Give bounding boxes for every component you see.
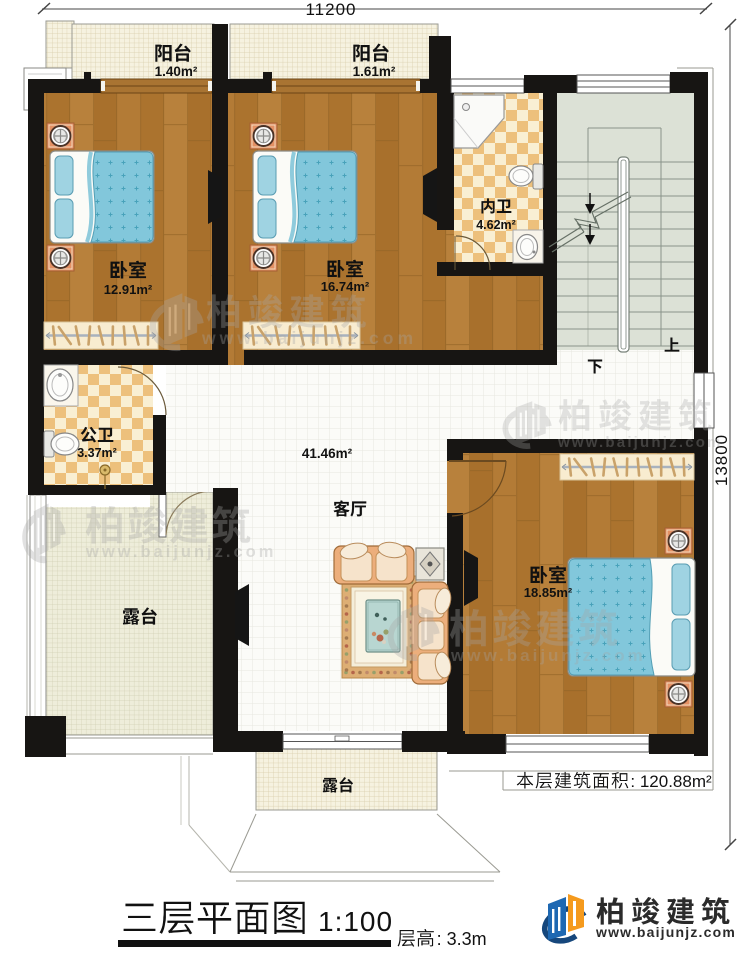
svg-text:1:100: 1:100 — [318, 906, 393, 937]
svg-text:: 120.88m²: : 120.88m² — [627, 772, 712, 791]
svg-text:www.baijunjz.com: www.baijunjz.com — [595, 924, 736, 940]
svg-text:www.baijunjz.com: www.baijunjz.com — [85, 543, 276, 561]
svg-text:4.62m²: 4.62m² — [476, 218, 516, 232]
svg-text:www.baijunjz.com: www.baijunjz.com — [201, 328, 417, 348]
svg-text:12.91m²: 12.91m² — [104, 282, 153, 297]
svg-text:16.74m²: 16.74m² — [321, 279, 370, 294]
svg-text:11200: 11200 — [305, 0, 356, 19]
svg-text:3.37m²: 3.37m² — [77, 446, 117, 460]
svg-text:www.baijunjz.com: www.baijunjz.com — [450, 646, 646, 665]
svg-text:41.46m²: 41.46m² — [302, 446, 353, 461]
svg-text:18.85m²: 18.85m² — [524, 585, 573, 600]
svg-text:: 3.3m: : 3.3m — [433, 929, 487, 949]
svg-text:1.61m²: 1.61m² — [353, 64, 396, 79]
svg-text:www.baijunjz.com: www.baijunjz.com — [557, 434, 723, 451]
svg-text:1.40m²: 1.40m² — [155, 64, 198, 79]
